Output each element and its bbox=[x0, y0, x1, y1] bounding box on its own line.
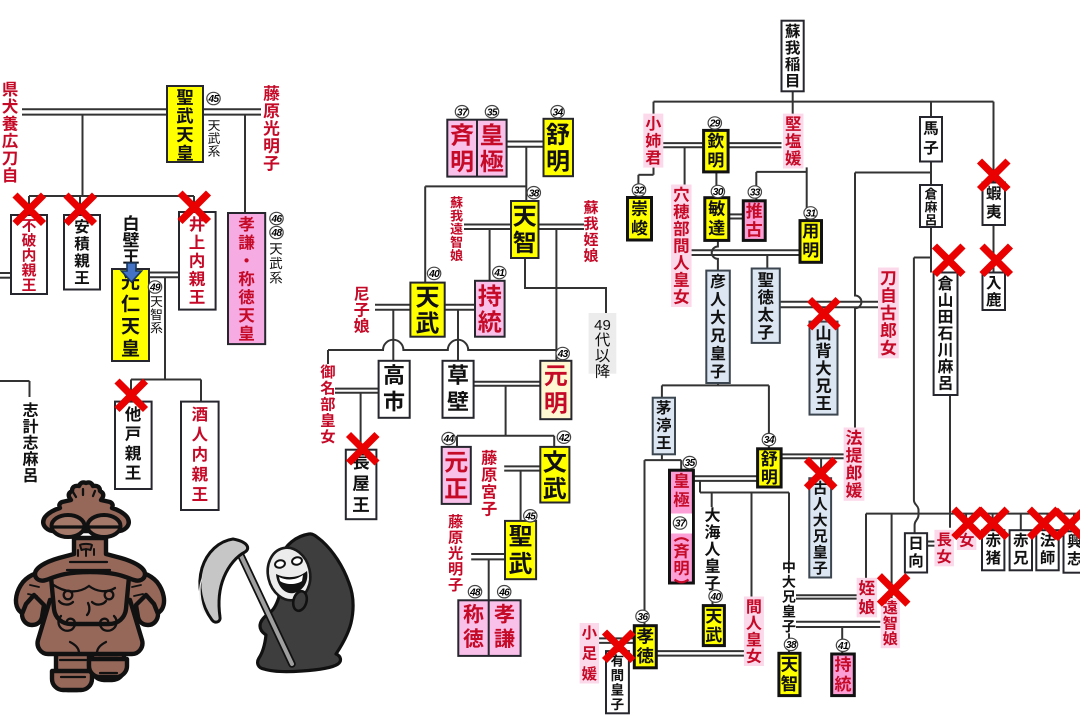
svg-text:33: 33 bbox=[750, 188, 761, 199]
svg-text:43: 43 bbox=[557, 349, 569, 360]
svg-text:34: 34 bbox=[764, 435, 775, 446]
svg-text:41: 41 bbox=[837, 641, 849, 652]
svg-text:49: 49 bbox=[149, 283, 161, 294]
svg-text:41: 41 bbox=[493, 268, 505, 279]
svg-text:45: 45 bbox=[524, 511, 536, 522]
svg-text:36: 36 bbox=[638, 612, 649, 623]
svg-text:35: 35 bbox=[487, 107, 498, 118]
svg-text:48: 48 bbox=[271, 228, 283, 239]
svg-text:29: 29 bbox=[709, 119, 721, 130]
svg-text:46: 46 bbox=[271, 214, 283, 225]
svg-text:49: 49 bbox=[594, 317, 611, 334]
svg-text:46: 46 bbox=[498, 587, 510, 598]
svg-text:32: 32 bbox=[634, 186, 645, 197]
svg-text:30: 30 bbox=[713, 187, 724, 198]
svg-text:31: 31 bbox=[806, 209, 817, 220]
svg-text:37: 37 bbox=[675, 519, 686, 530]
svg-text:40: 40 bbox=[710, 592, 722, 603]
svg-text:45: 45 bbox=[208, 94, 220, 105]
svg-text:37: 37 bbox=[457, 107, 468, 118]
svg-text:44: 44 bbox=[443, 434, 455, 445]
svg-text:35: 35 bbox=[685, 458, 696, 469]
svg-text:38: 38 bbox=[786, 640, 797, 651]
svg-text:42: 42 bbox=[558, 433, 570, 444]
svg-text:40: 40 bbox=[428, 269, 440, 280]
svg-text:48: 48 bbox=[469, 587, 481, 598]
svg-text:34: 34 bbox=[553, 107, 564, 118]
svg-text:38: 38 bbox=[529, 188, 540, 199]
